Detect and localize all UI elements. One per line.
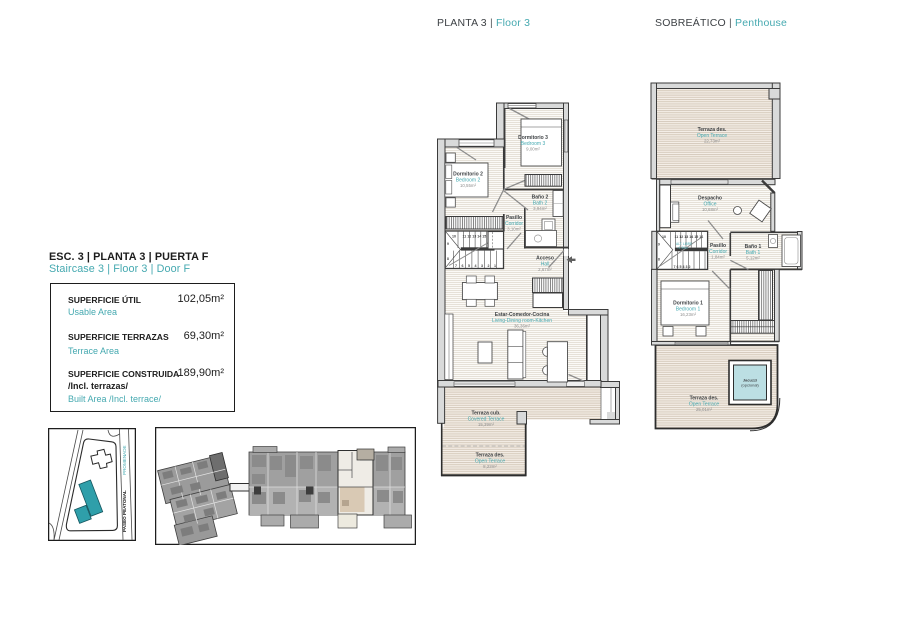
svg-text:25,01m²: 25,01m²	[696, 407, 713, 412]
svg-text:10,55m²: 10,55m²	[460, 183, 477, 188]
svg-text:22,73m²: 22,73m²	[704, 138, 721, 143]
svg-text:7 6 5 4 3 2: 7 6 5 4 3 2	[674, 265, 691, 269]
svg-text:15,39m²: 15,39m²	[478, 422, 495, 427]
svg-text:36,36m²: 36,36m²	[514, 323, 531, 328]
svg-text:3: 3	[481, 264, 483, 268]
svg-text:10: 10	[452, 235, 456, 239]
svg-text:7: 7	[455, 264, 457, 268]
svg-text:9: 9	[658, 243, 660, 247]
svg-text:1,84m²: 1,84m²	[711, 254, 725, 259]
svg-text:16,23m²: 16,23m²	[680, 312, 697, 317]
svg-text:5: 5	[468, 264, 470, 268]
svg-text:2: 2	[488, 264, 490, 268]
svg-text:1: 1	[494, 264, 496, 268]
svg-text:9: 9	[447, 242, 449, 246]
svg-text:8: 8	[447, 257, 449, 261]
svg-text:PASEO PEATONAL: PASEO PEATONAL	[122, 490, 127, 532]
svg-text:3,94m²: 3,94m²	[533, 206, 547, 211]
svg-text:11 12 13 14 15 16: 11 12 13 14 15 16	[675, 235, 704, 239]
svg-text:9,00m²: 9,00m²	[526, 146, 540, 151]
svg-text:5,12m²: 5,12m²	[746, 255, 760, 260]
svg-text:10: 10	[662, 235, 666, 239]
svg-text:<1,90m: <1,90m	[677, 246, 688, 250]
svg-text:2,67m²: 2,67m²	[538, 267, 552, 272]
svg-text:10,68m²: 10,68m²	[702, 207, 719, 212]
svg-text:8: 8	[658, 258, 660, 262]
svg-text:3,10m²: 3,10m²	[507, 227, 521, 232]
svg-text:PROMENADE: PROMENADE	[122, 445, 127, 475]
svg-text:8,23m²: 8,23m²	[483, 464, 497, 469]
svg-text:6: 6	[462, 264, 464, 268]
svg-text:4: 4	[475, 264, 477, 268]
svg-text:11 12 13 14 15 16: 11 12 13 14 15 16	[463, 235, 492, 239]
svg-text:(opcional): (opcional)	[741, 383, 759, 388]
